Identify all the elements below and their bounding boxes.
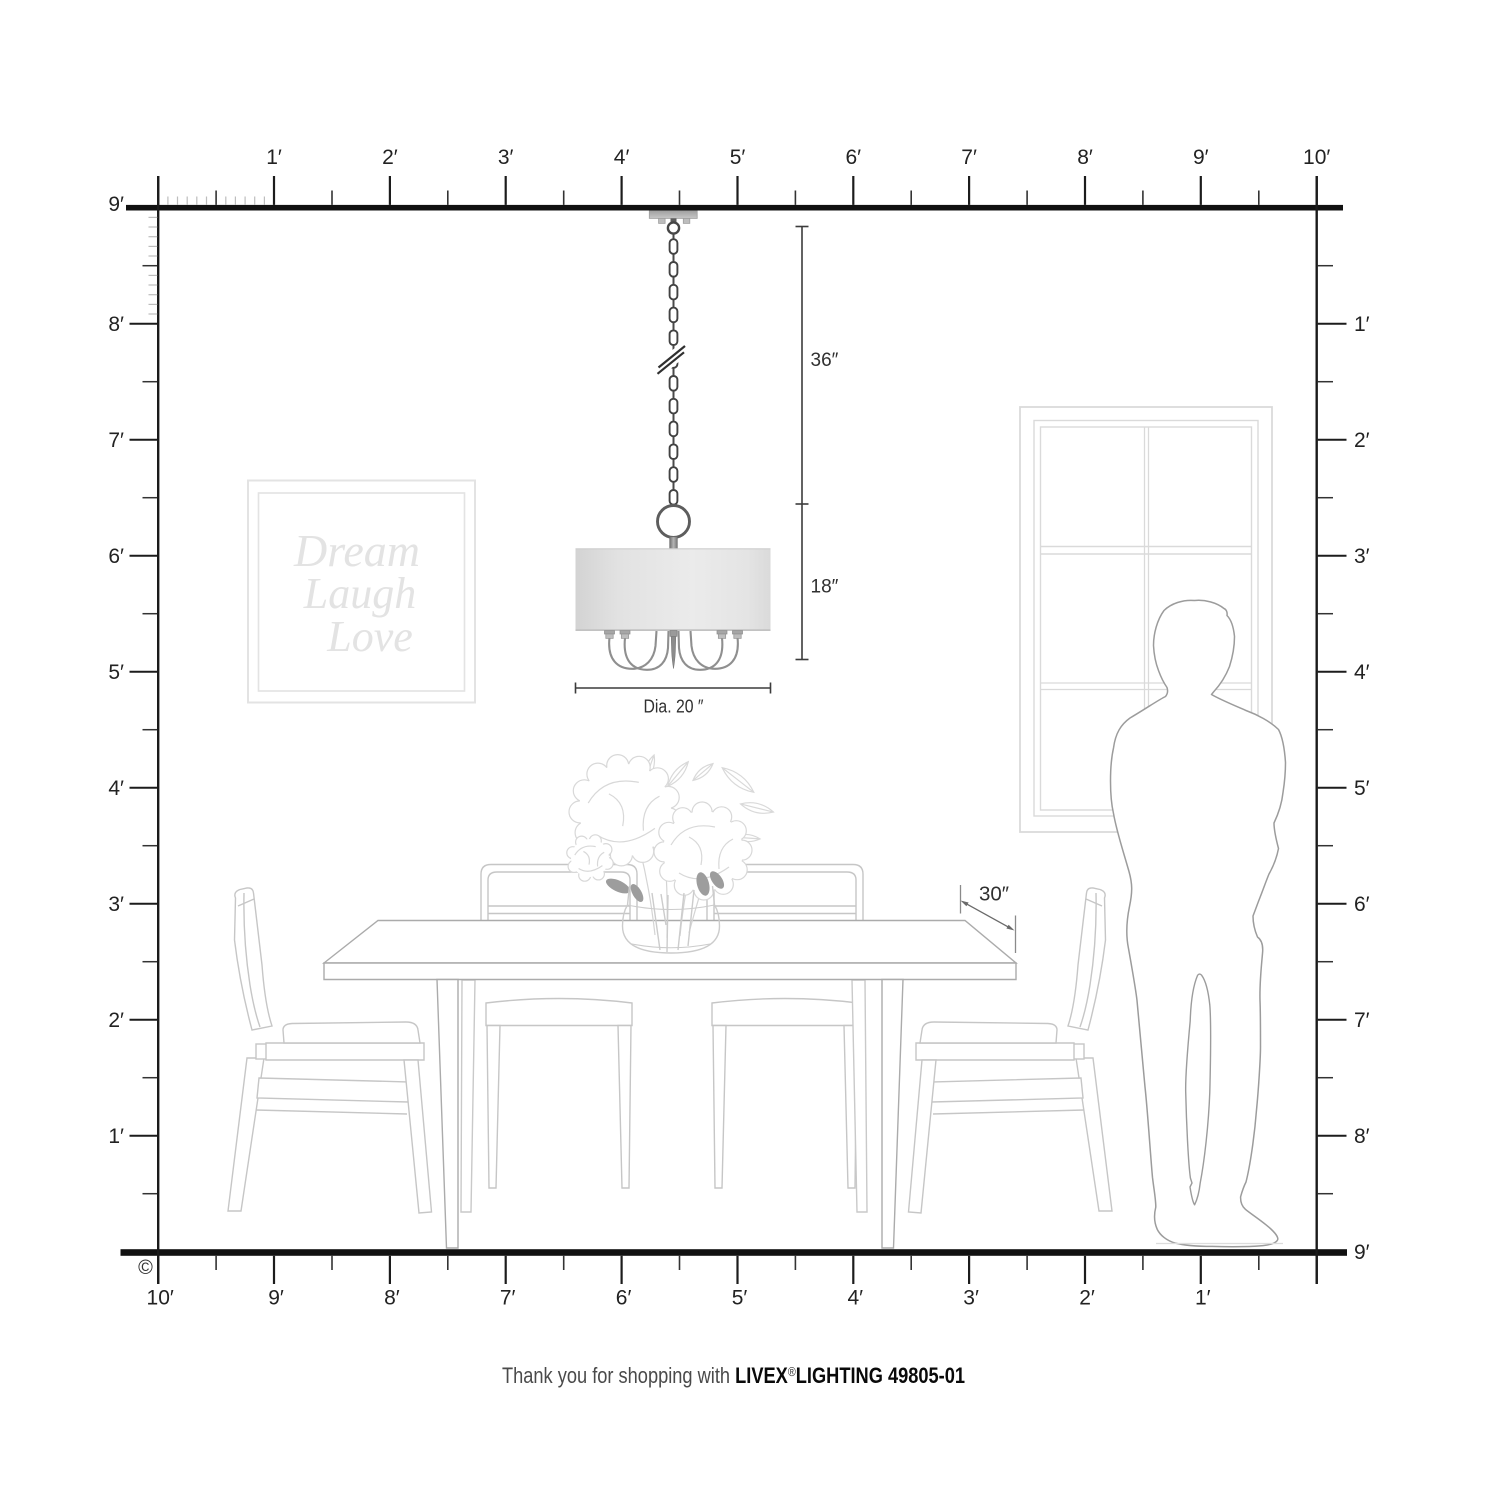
svg-text:Laugh: Laugh	[303, 569, 416, 618]
svg-text:9′: 9′	[1354, 1241, 1370, 1264]
svg-text:Love: Love	[326, 612, 413, 661]
svg-text:36″: 36″	[811, 350, 839, 371]
svg-text:2′: 2′	[1354, 429, 1370, 452]
svg-text:8′: 8′	[1354, 1125, 1370, 1148]
svg-text:4′: 4′	[614, 146, 630, 169]
svg-text:4′: 4′	[108, 777, 124, 800]
svg-text:3′: 3′	[963, 1287, 979, 1310]
svg-text:3′: 3′	[108, 893, 124, 916]
svg-text:30″: 30″	[979, 883, 1009, 906]
svg-text:1′: 1′	[1195, 1287, 1211, 1310]
svg-text:6′: 6′	[845, 146, 861, 169]
svg-text:6′: 6′	[1354, 893, 1370, 916]
svg-text:3′: 3′	[498, 146, 514, 169]
svg-text:1′: 1′	[108, 1125, 124, 1148]
svg-text:8′: 8′	[384, 1287, 400, 1310]
svg-text:18″: 18″	[811, 577, 839, 598]
svg-text:1′: 1′	[1354, 313, 1370, 336]
svg-text:9′: 9′	[1193, 146, 1209, 169]
svg-text:4′: 4′	[847, 1287, 863, 1310]
svg-text:5′: 5′	[730, 146, 746, 169]
svg-text:9′: 9′	[268, 1287, 284, 1310]
svg-text:10′: 10′	[147, 1287, 174, 1310]
svg-text:2′: 2′	[108, 1009, 124, 1032]
svg-text:2′: 2′	[382, 146, 398, 169]
svg-text:10′: 10′	[1303, 146, 1330, 169]
svg-text:6′: 6′	[108, 545, 124, 568]
svg-text:7′: 7′	[108, 429, 124, 452]
svg-text:8′: 8′	[1077, 146, 1093, 169]
svg-text:7′: 7′	[961, 146, 977, 169]
svg-text:3′: 3′	[1354, 545, 1370, 568]
svg-text:Thank you for shopping with LI: Thank you for shopping with LIVEX®LIGHTI…	[502, 1363, 965, 1388]
svg-text:5′: 5′	[1354, 777, 1370, 800]
svg-text:1′: 1′	[266, 146, 282, 169]
svg-text:5′: 5′	[732, 1287, 748, 1310]
svg-text:2′: 2′	[1079, 1287, 1095, 1310]
svg-text:6′: 6′	[616, 1287, 632, 1310]
svg-text:©: ©	[138, 1257, 153, 1279]
svg-text:9′: 9′	[108, 193, 124, 216]
svg-text:Dia. 20 ″: Dia. 20 ″	[644, 696, 704, 717]
svg-text:8′: 8′	[108, 313, 124, 336]
svg-text:5′: 5′	[108, 661, 124, 684]
svg-text:7′: 7′	[500, 1287, 516, 1310]
svg-text:4′: 4′	[1354, 661, 1370, 684]
svg-text:7′: 7′	[1354, 1009, 1370, 1032]
